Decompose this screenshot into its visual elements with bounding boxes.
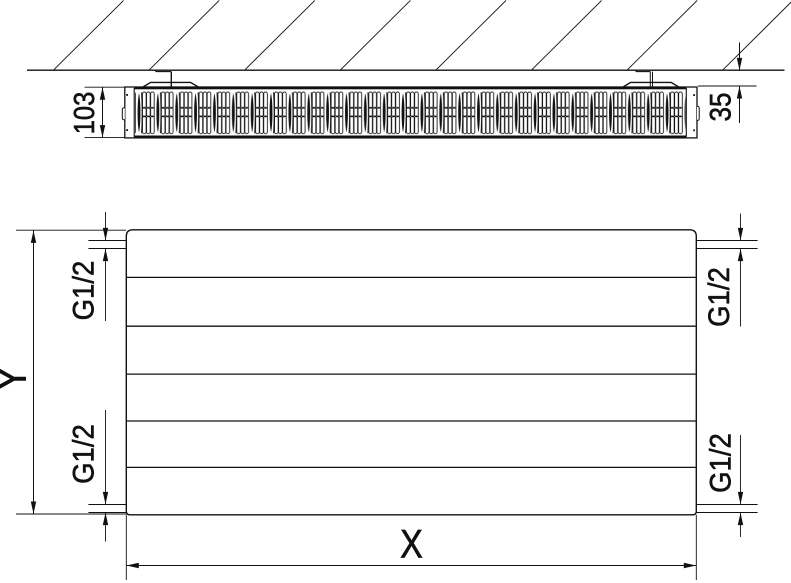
svg-text:X: X	[400, 522, 423, 566]
svg-text:103: 103	[68, 92, 101, 135]
svg-text:35: 35	[704, 92, 737, 121]
svg-text:Y: Y	[0, 367, 34, 390]
svg-text:G1/2: G1/2	[68, 424, 101, 484]
svg-text:G1/2: G1/2	[704, 433, 737, 493]
svg-text:G1/2: G1/2	[703, 267, 736, 327]
svg-text:G1/2: G1/2	[68, 261, 101, 321]
